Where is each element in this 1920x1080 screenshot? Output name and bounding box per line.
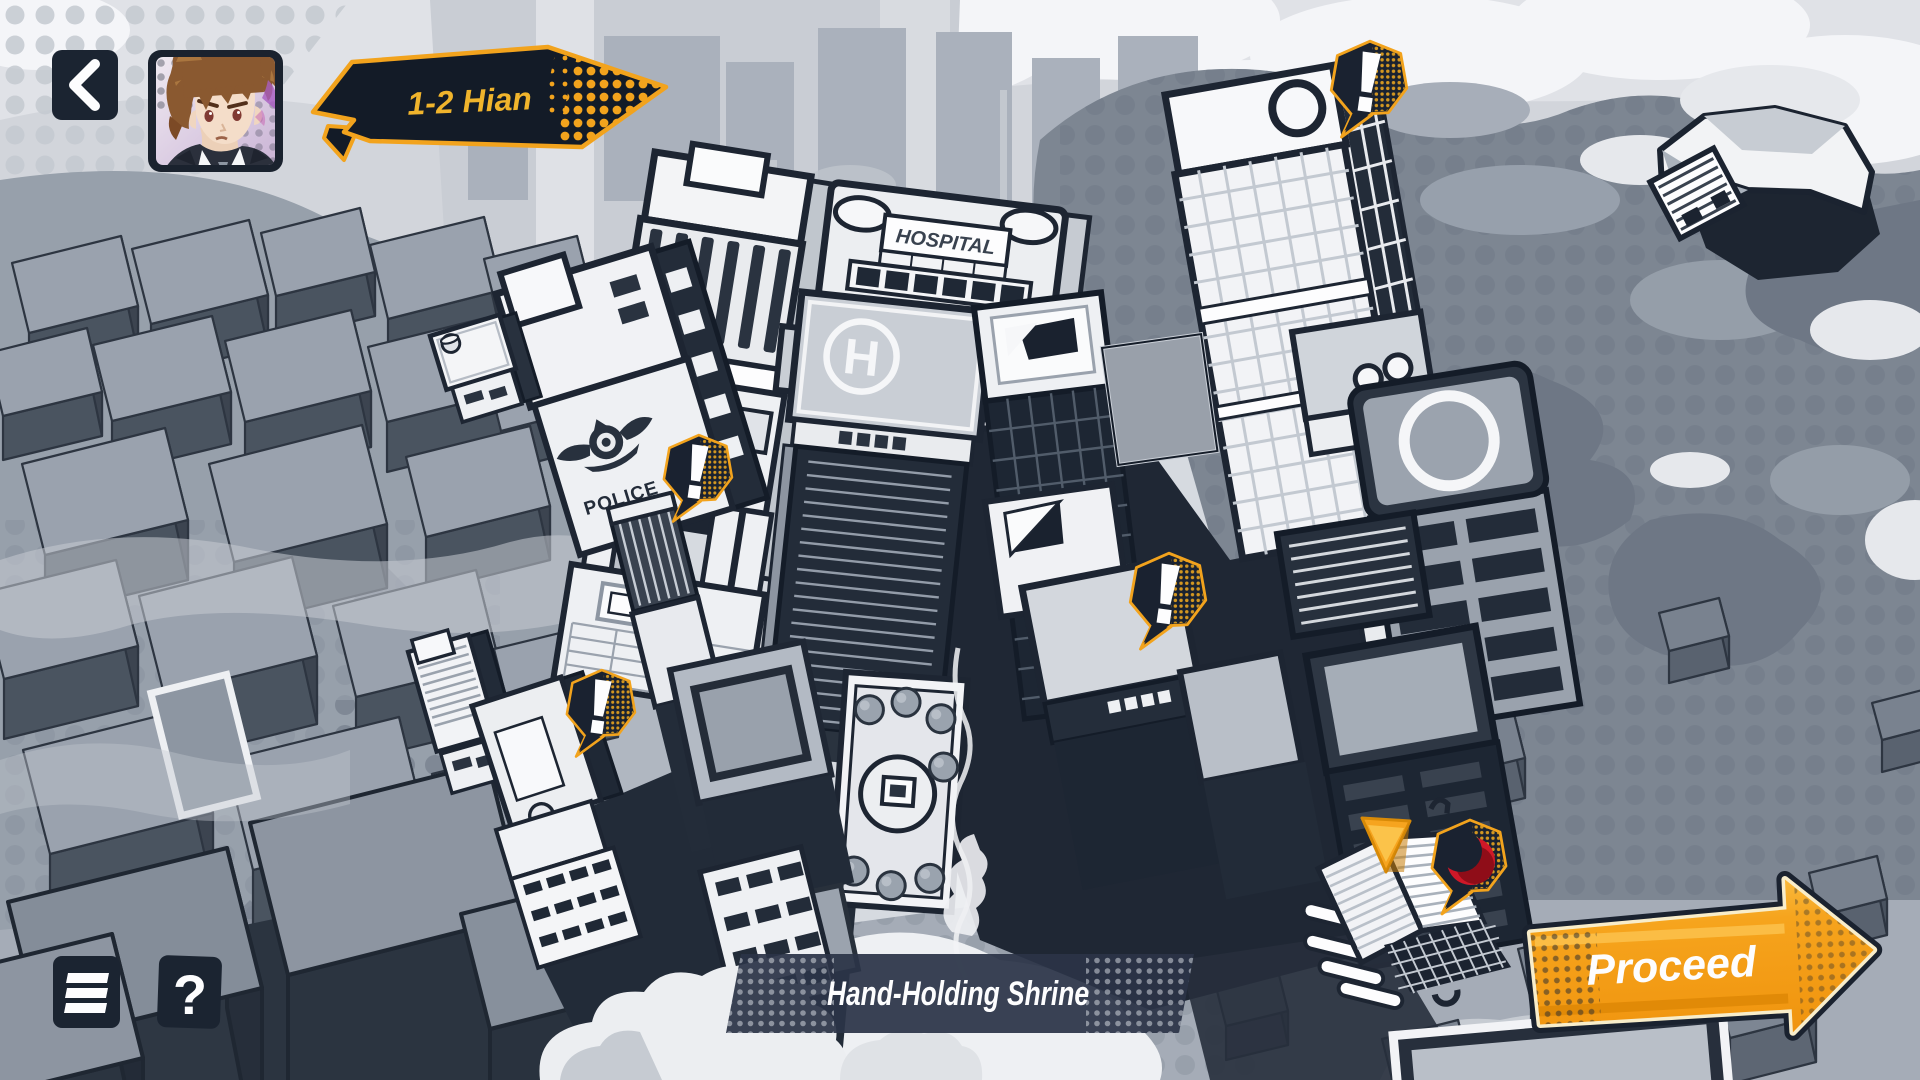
svg-text:H: H	[841, 328, 883, 387]
svg-text:Hand-Holding Shrine: Hand-Holding Shrine	[827, 975, 1089, 1013]
svg-text:Proceed: Proceed	[1585, 938, 1758, 995]
svg-text:?: ?	[173, 963, 207, 1026]
svg-text:1-2 Hian: 1-2 Hian	[407, 80, 533, 121]
